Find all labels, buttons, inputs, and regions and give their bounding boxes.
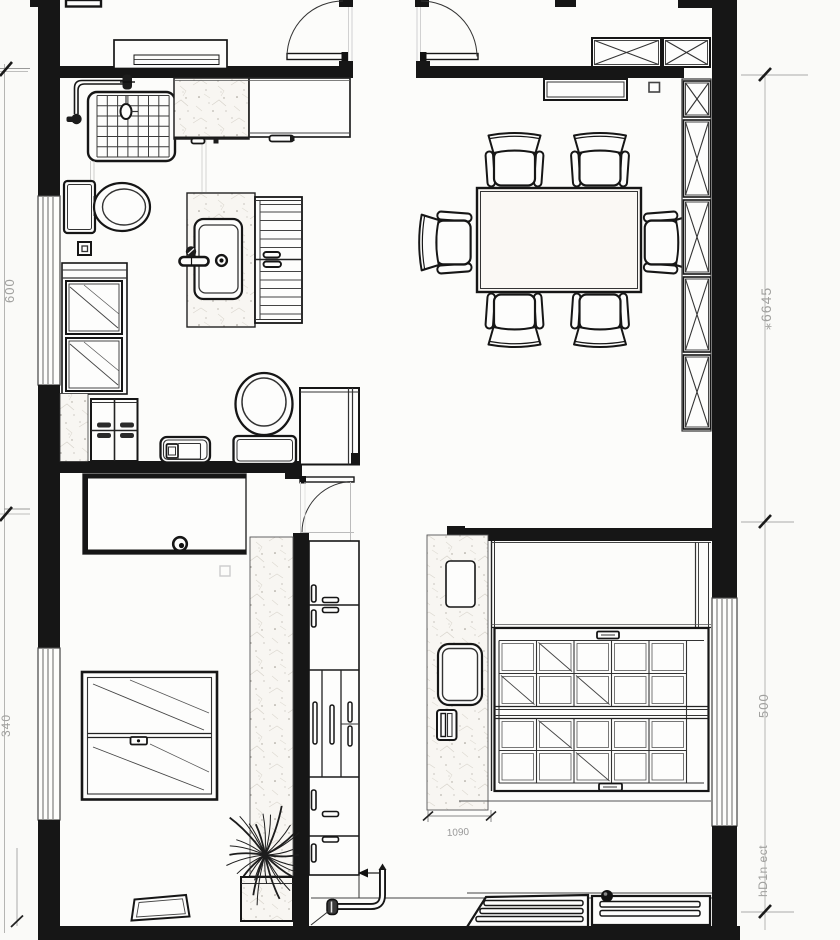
svg-text:hD1n ect: hD1n ect	[756, 845, 770, 897]
svg-text:340: 340	[0, 714, 13, 737]
svg-text:⁎6645: ⁎6645	[758, 287, 774, 330]
svg-text:600: 600	[2, 278, 17, 303]
svg-text:1090: 1090	[447, 827, 470, 839]
svg-text:500: 500	[756, 693, 771, 718]
